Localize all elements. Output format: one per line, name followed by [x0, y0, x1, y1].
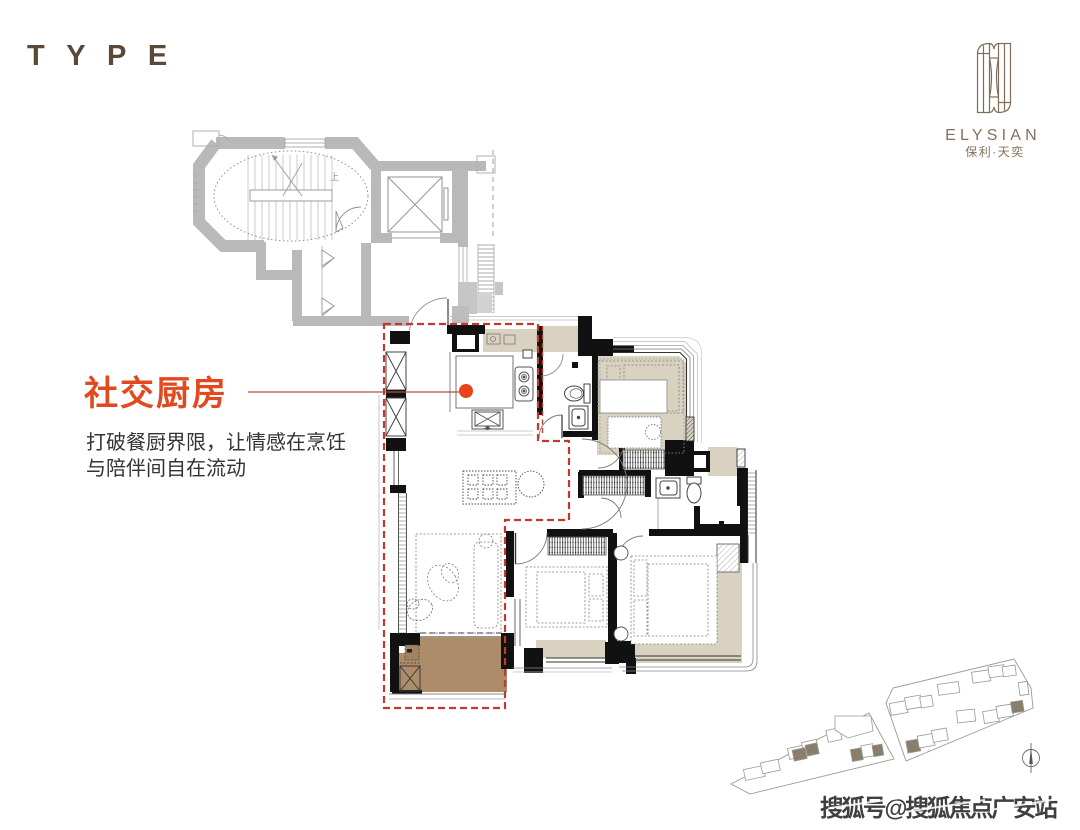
svg-text:社交厨房: 社交厨房	[84, 374, 228, 413]
svg-text:上: 上	[330, 172, 339, 182]
svg-text:与陪伴间自在流动: 与陪伴间自在流动	[86, 457, 246, 480]
svg-text:打破餐厨界限，让情感在烹饪: 打破餐厨界限，让情感在烹饪	[86, 431, 346, 454]
svg-text:ELYSIAN: ELYSIAN	[945, 127, 1041, 144]
svg-text:TYPE: TYPE	[27, 40, 189, 72]
svg-text:保利·天奕: 保利·天奕	[965, 144, 1025, 159]
